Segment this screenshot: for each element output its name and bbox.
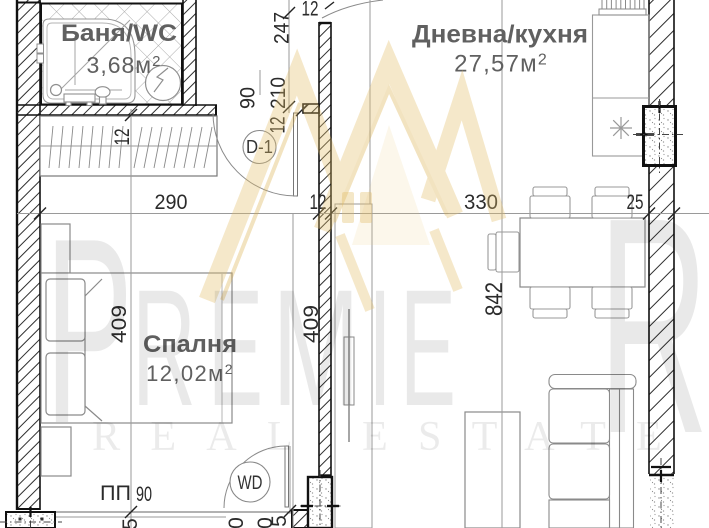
svg-text:290: 290 [155, 191, 188, 214]
svg-text:3,68м2: 3,68м2 [87, 52, 162, 78]
svg-text:90: 90 [237, 87, 260, 109]
svg-text:REAL ESTATE: REAL ESTATE [92, 414, 692, 460]
svg-text:Дневна/кухня: Дневна/кухня [412, 21, 588, 49]
svg-text:5: 5 [119, 518, 142, 528]
svg-text:WD: WD [238, 473, 263, 494]
svg-text:Баня/WC: Баня/WC [61, 20, 177, 47]
svg-text:12: 12 [111, 129, 134, 146]
svg-text:27,57м2: 27,57м2 [454, 51, 548, 78]
svg-text:12: 12 [302, 0, 319, 21]
svg-text:5: 5 [268, 515, 291, 527]
svg-text:842: 842 [481, 282, 508, 316]
svg-text:247: 247 [271, 12, 294, 44]
svg-text:0: 0 [225, 517, 248, 528]
svg-text:ПП: ПП [100, 482, 131, 505]
svg-text:90: 90 [136, 483, 152, 506]
